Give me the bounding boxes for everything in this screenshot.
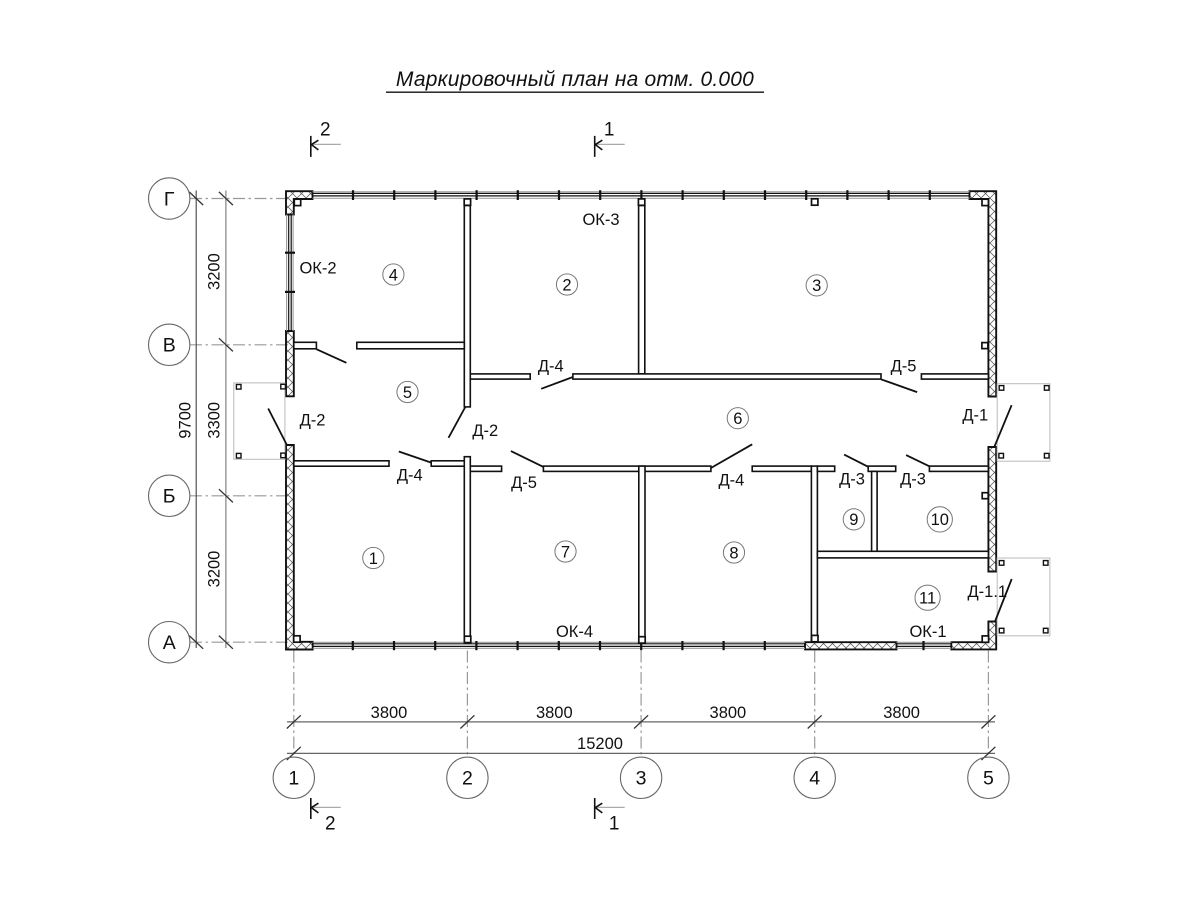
svg-text:ОК-3: ОК-3 xyxy=(582,211,619,229)
svg-text:15200: 15200 xyxy=(577,735,623,753)
svg-text:4: 4 xyxy=(809,768,820,790)
svg-text:ОК-1: ОК-1 xyxy=(909,623,946,641)
svg-text:7: 7 xyxy=(561,543,570,561)
svg-text:Д-1.1: Д-1.1 xyxy=(967,583,1007,601)
svg-text:9700: 9700 xyxy=(177,402,195,439)
svg-text:ОК-2: ОК-2 xyxy=(299,260,336,278)
svg-text:3: 3 xyxy=(636,768,647,790)
svg-text:Д-3: Д-3 xyxy=(839,471,865,489)
svg-text:Д-5: Д-5 xyxy=(511,474,537,492)
svg-text:Маркировочный план на отм. 0.0: Маркировочный план на отм. 0.000 xyxy=(396,68,754,91)
svg-text:3200: 3200 xyxy=(206,551,224,588)
svg-text:2: 2 xyxy=(462,768,473,790)
svg-text:1: 1 xyxy=(369,550,378,568)
svg-text:Б: Б xyxy=(163,486,176,508)
svg-text:2: 2 xyxy=(320,119,331,140)
svg-text:8: 8 xyxy=(729,544,738,562)
svg-text:Д-4: Д-4 xyxy=(718,471,744,489)
svg-text:6: 6 xyxy=(733,410,742,428)
svg-text:А: А xyxy=(163,632,176,654)
svg-text:5: 5 xyxy=(983,768,994,790)
svg-text:1: 1 xyxy=(609,814,620,835)
svg-text:Д-2: Д-2 xyxy=(300,412,326,430)
svg-text:Д-3: Д-3 xyxy=(900,471,926,489)
svg-text:3800: 3800 xyxy=(883,704,920,722)
svg-text:3200: 3200 xyxy=(206,253,224,290)
svg-text:1: 1 xyxy=(604,119,615,140)
svg-text:1: 1 xyxy=(288,768,299,790)
svg-text:9: 9 xyxy=(849,511,858,529)
svg-text:3: 3 xyxy=(812,277,821,295)
svg-text:Д-4: Д-4 xyxy=(538,357,564,375)
svg-text:11: 11 xyxy=(919,590,936,608)
svg-text:5: 5 xyxy=(403,384,412,402)
svg-text:3800: 3800 xyxy=(710,704,747,722)
svg-text:Д-4: Д-4 xyxy=(397,466,423,484)
svg-text:3800: 3800 xyxy=(371,704,408,722)
svg-text:3300: 3300 xyxy=(206,402,224,439)
svg-text:Д-1: Д-1 xyxy=(962,407,988,425)
svg-text:4: 4 xyxy=(389,266,398,284)
svg-text:Д-5: Д-5 xyxy=(891,357,917,375)
svg-text:Г: Г xyxy=(164,188,175,210)
svg-text:2: 2 xyxy=(325,814,336,835)
svg-text:2: 2 xyxy=(562,276,571,294)
svg-text:ОК-4: ОК-4 xyxy=(556,623,593,641)
svg-text:Д-2: Д-2 xyxy=(472,422,498,440)
svg-text:3800: 3800 xyxy=(536,704,573,722)
svg-text:10: 10 xyxy=(931,511,949,529)
svg-text:В: В xyxy=(163,335,176,357)
